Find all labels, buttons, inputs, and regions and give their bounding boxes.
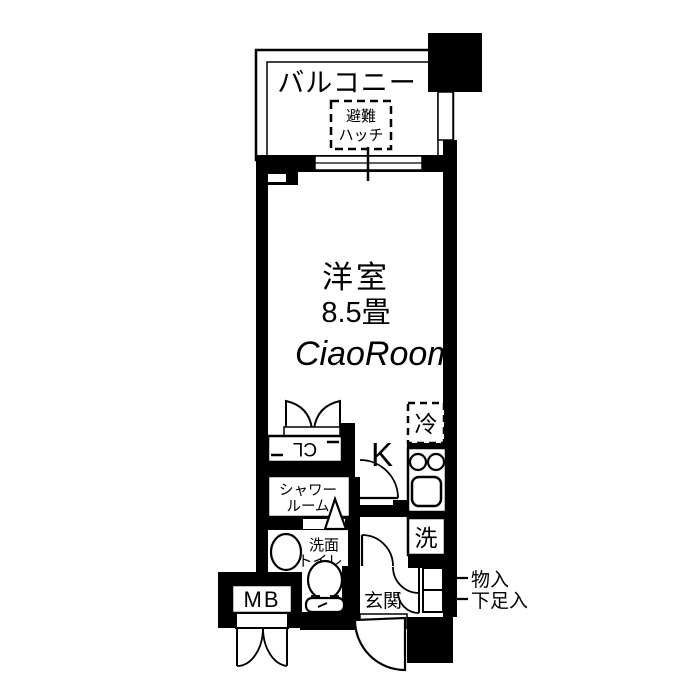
wall-left	[256, 155, 268, 572]
burner-right	[428, 454, 444, 470]
entrance-label: 玄関	[364, 590, 402, 612]
laundry-label: 洗	[415, 525, 438, 551]
kitchen: K 冷	[371, 403, 446, 512]
mb-door-left-arc	[237, 628, 263, 666]
shoe-cabinet-box	[423, 590, 443, 612]
main-room-size: 8.5畳	[321, 297, 390, 329]
closet-bifold-left	[286, 401, 312, 429]
storage-door-arc	[393, 567, 419, 593]
wall-below-laundry	[408, 555, 457, 568]
mb-door-right-arc	[263, 628, 287, 666]
toilet-bowl	[308, 561, 342, 599]
meter-box-label: MB	[244, 587, 281, 612]
wall-corridor-bottom	[350, 505, 395, 517]
laundry: 洗	[408, 518, 445, 555]
closet-bifold-right	[314, 401, 340, 429]
meter-box: MB	[232, 585, 292, 666]
entrance: 玄関	[355, 590, 407, 670]
storage-closets: 物入 下足入	[393, 567, 528, 613]
main-room-label: 洋室	[322, 260, 390, 295]
wall-bottom-band	[300, 612, 360, 630]
storage-label: 物入	[471, 569, 509, 591]
washroom-label-1: 洗面	[309, 537, 339, 554]
floor-plan: CiaoRoom バルコニー 避難 ハッチ 洋室	[0, 0, 700, 700]
watermark-text: CiaoRoom	[295, 335, 456, 373]
evacuation-hatch-label-2: ハッチ	[338, 127, 383, 144]
balcony-label: バルコニー	[277, 68, 416, 98]
meter-box-track	[236, 613, 288, 628]
closet-track	[284, 427, 340, 436]
evacuation-hatch-label-1: 避難	[346, 108, 376, 125]
entrance-door	[355, 618, 405, 670]
balcony: バルコニー 避難 ハッチ	[256, 50, 453, 160]
burner-left	[410, 454, 426, 470]
wall-jog-notch	[268, 174, 286, 182]
door-washroom	[362, 535, 393, 566]
storage-box	[423, 568, 443, 590]
fridge-label: 冷	[415, 411, 438, 437]
corner-block-bottom	[407, 617, 453, 663]
column-block	[428, 33, 482, 92]
shower-label-2: ルーム	[286, 499, 329, 515]
toilet-base	[306, 598, 344, 612]
closet: CL	[268, 401, 342, 462]
kitchen-sink	[412, 477, 441, 506]
side-window	[438, 92, 453, 140]
shoe-cabinet-label: 下足入	[471, 591, 528, 612]
closet-label: CL	[293, 438, 317, 459]
basin	[271, 534, 301, 570]
floor-plan-drawing: CiaoRoom バルコニー 避難 ハッチ 洋室	[0, 0, 700, 700]
shower-label-1: シャワー	[279, 483, 337, 499]
